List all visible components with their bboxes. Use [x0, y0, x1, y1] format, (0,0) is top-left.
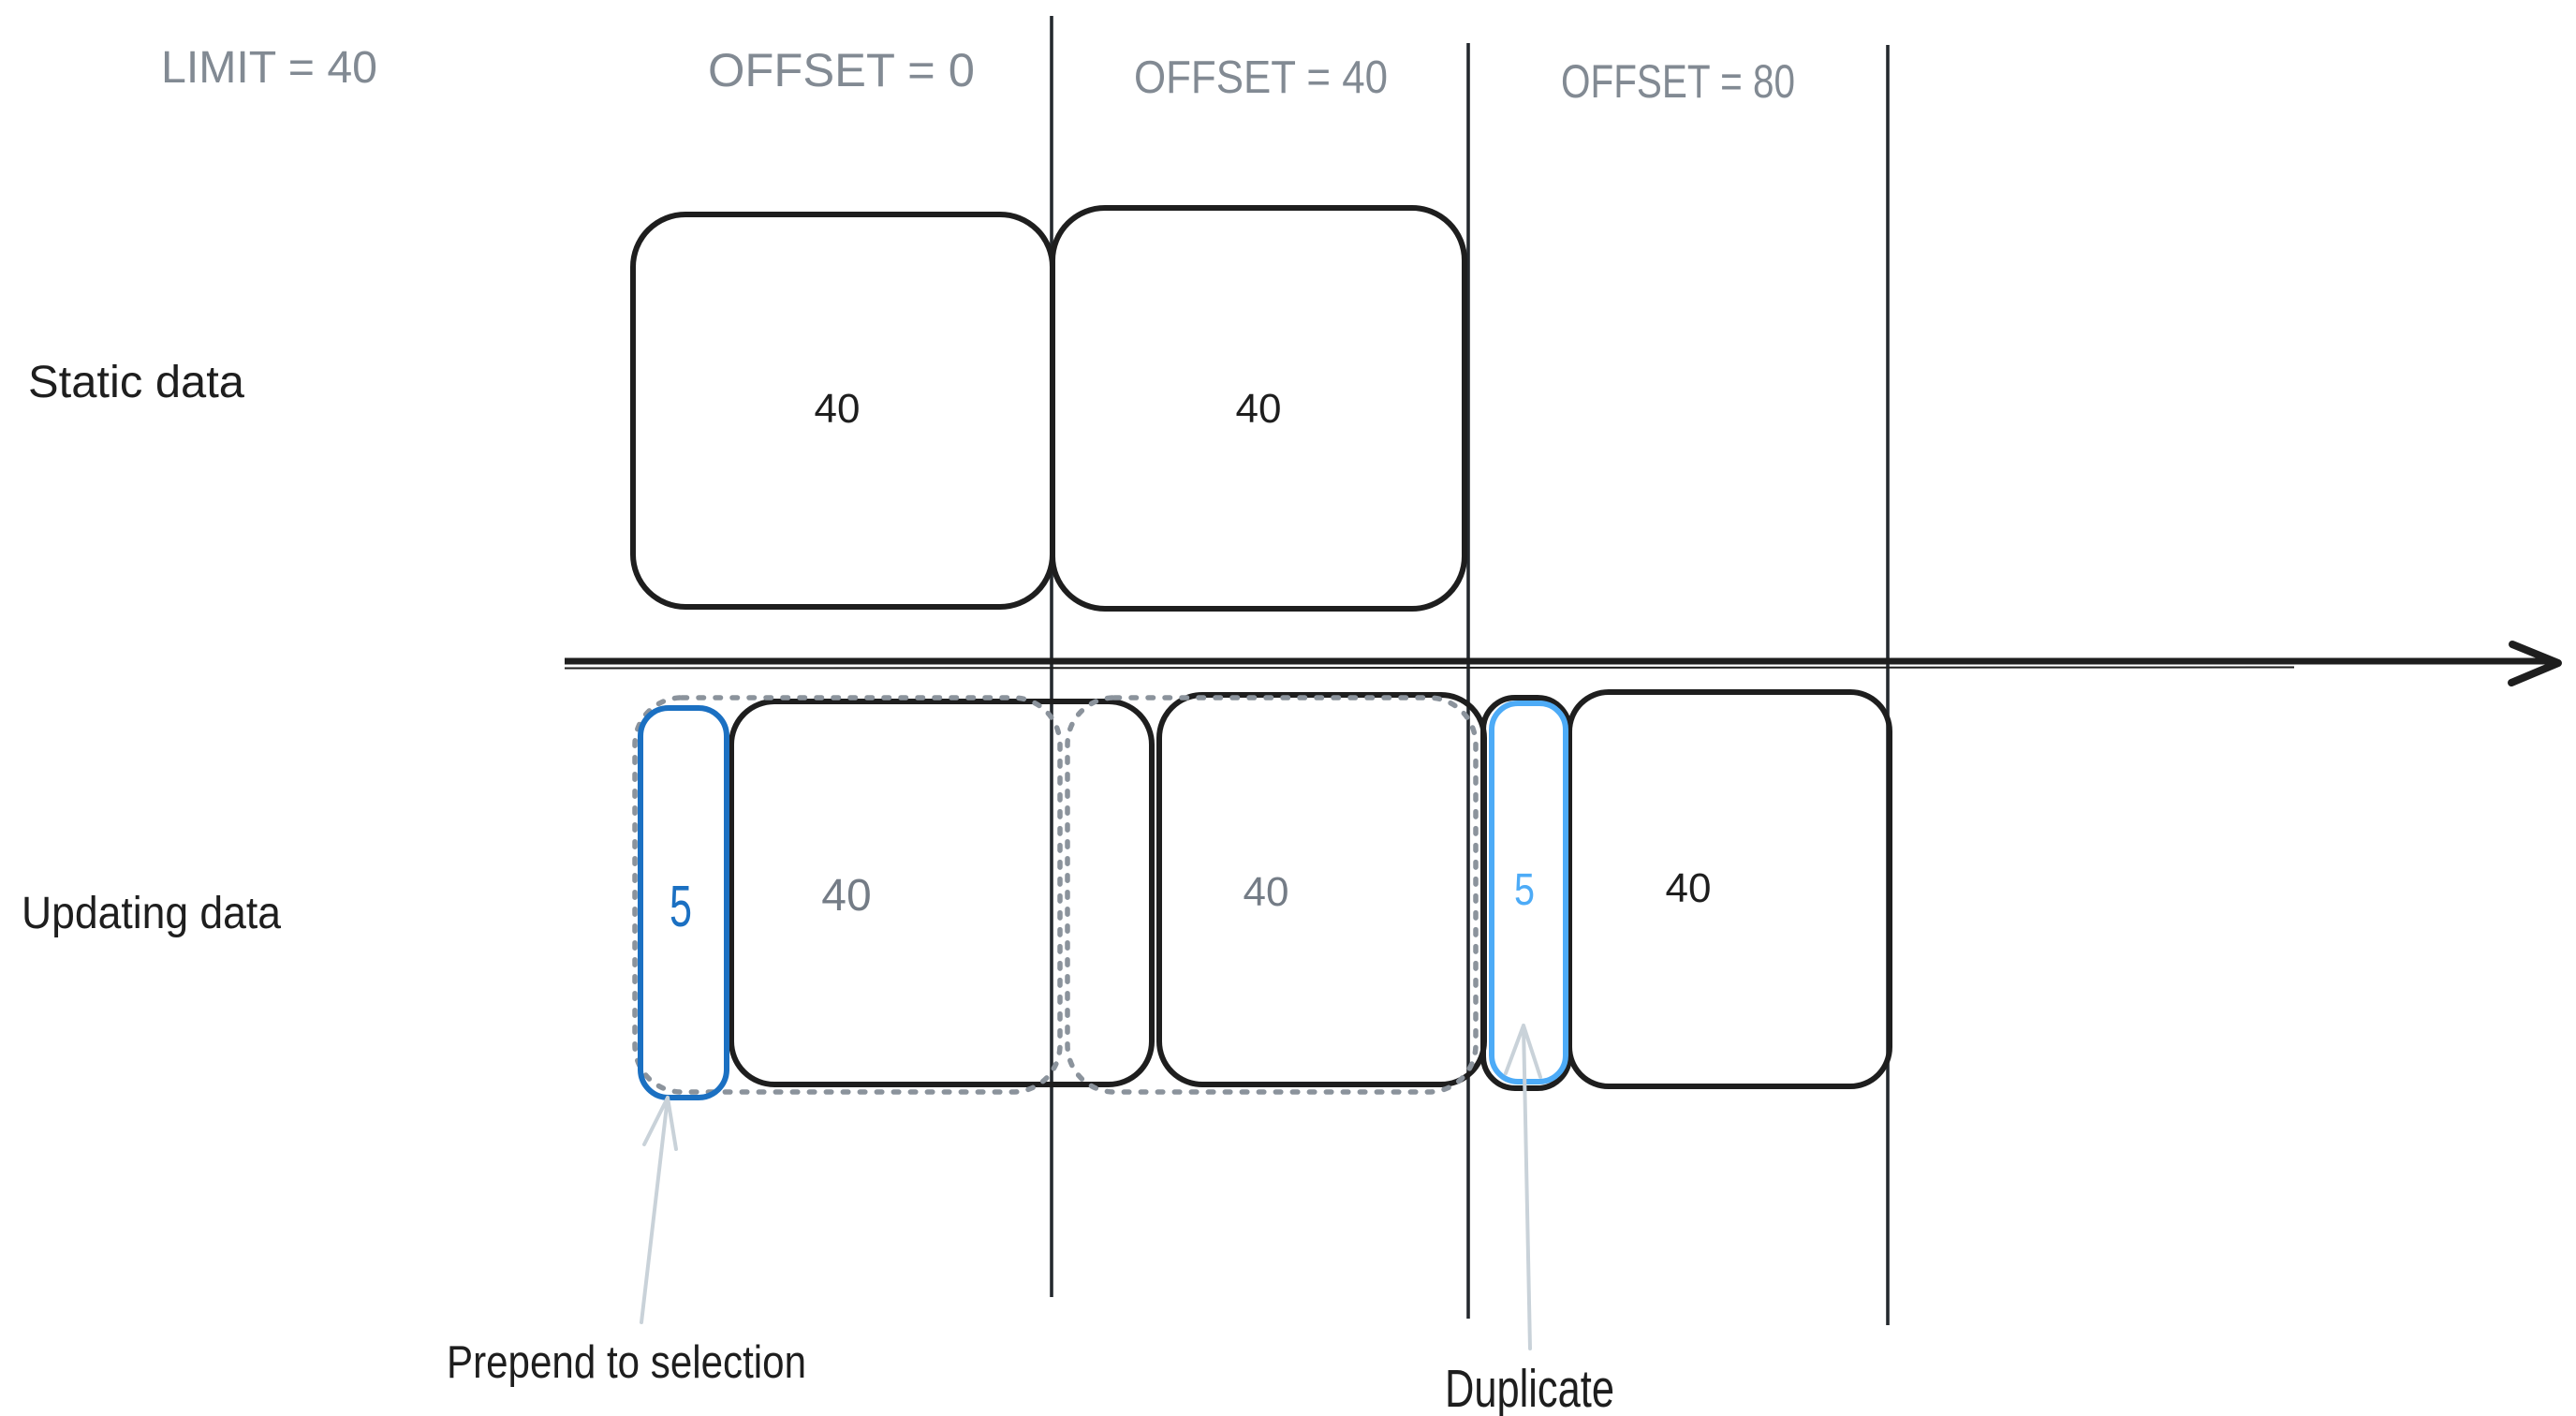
svg-text:5: 5 [1514, 865, 1535, 915]
svg-text:40: 40 [1244, 869, 1289, 915]
svg-text:40: 40 [821, 871, 871, 921]
svg-text:Duplicate: Duplicate [1445, 1359, 1614, 1416]
svg-text:LIMIT = 40: LIMIT = 40 [161, 43, 377, 93]
svg-text:5: 5 [670, 875, 692, 939]
svg-text:Updating data: Updating data [22, 889, 281, 938]
svg-text:40: 40 [815, 386, 861, 432]
svg-text:Static data: Static data [28, 358, 244, 407]
svg-text:OFFSET = 80: OFFSET = 80 [1561, 55, 1795, 108]
svg-text:40: 40 [1666, 865, 1712, 911]
svg-text:OFFSET = 40: OFFSET = 40 [1134, 52, 1388, 103]
svg-text:Prepend to selection: Prepend to selection [447, 1337, 806, 1388]
svg-text:OFFSET = 0: OFFSET = 0 [708, 44, 975, 96]
svg-text:40: 40 [1236, 386, 1282, 432]
